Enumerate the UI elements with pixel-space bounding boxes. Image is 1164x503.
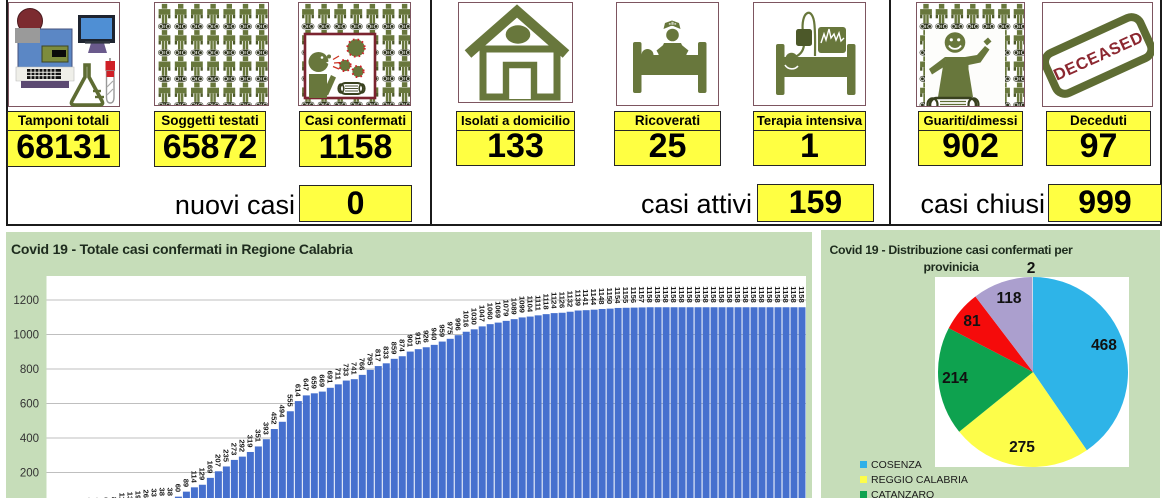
svg-text:81: 81 — [963, 313, 981, 330]
svg-text:1158: 1158 — [797, 286, 806, 302]
svg-text:940: 940 — [429, 328, 438, 341]
svg-text:795: 795 — [365, 353, 374, 366]
svg-text:38: 38 — [166, 487, 175, 495]
svg-text:1047: 1047 — [477, 305, 486, 322]
svg-text:1158: 1158 — [717, 286, 726, 302]
svg-text:1126: 1126 — [557, 292, 566, 308]
svg-text:659: 659 — [309, 376, 318, 389]
svg-text:1060: 1060 — [485, 303, 494, 320]
svg-text:1158: 1158 — [701, 286, 710, 302]
svg-text:1030: 1030 — [469, 308, 478, 325]
svg-text:129: 129 — [198, 468, 207, 481]
svg-text:1158: 1158 — [693, 286, 702, 302]
svg-text:800: 800 — [20, 364, 39, 376]
svg-text:1150: 1150 — [605, 288, 614, 304]
svg-text:1157: 1157 — [637, 286, 646, 302]
svg-text:2: 2 — [1027, 260, 1036, 277]
svg-text:901: 901 — [405, 334, 414, 347]
svg-text:691: 691 — [325, 371, 334, 384]
svg-text:669: 669 — [317, 374, 326, 387]
svg-text:494: 494 — [277, 405, 286, 418]
svg-text:114: 114 — [190, 471, 199, 484]
svg-text:600: 600 — [20, 399, 39, 411]
svg-text:1089: 1089 — [509, 298, 518, 315]
svg-text:733: 733 — [341, 363, 350, 376]
svg-text:859: 859 — [389, 342, 398, 355]
svg-text:1158: 1158 — [669, 286, 678, 302]
svg-text:1079: 1079 — [501, 299, 510, 316]
svg-text:214: 214 — [942, 370, 968, 387]
svg-text:1158: 1158 — [789, 286, 798, 302]
svg-text:1144: 1144 — [589, 289, 598, 306]
svg-text:1158: 1158 — [645, 286, 654, 302]
svg-text:1124: 1124 — [549, 292, 558, 309]
svg-text:915: 915 — [413, 332, 422, 345]
svg-text:1158: 1158 — [749, 286, 758, 302]
svg-text:1000: 1000 — [13, 330, 39, 342]
svg-text:468: 468 — [1091, 337, 1117, 354]
svg-text:1099: 1099 — [517, 296, 526, 313]
svg-text:1200: 1200 — [13, 295, 39, 307]
svg-text:1016: 1016 — [461, 310, 470, 327]
svg-text:26: 26 — [142, 490, 151, 498]
svg-text:1158: 1158 — [773, 286, 782, 302]
svg-text:1158: 1158 — [757, 286, 766, 302]
svg-text:1132: 1132 — [565, 291, 574, 307]
svg-text:1104: 1104 — [525, 296, 534, 313]
svg-text:766: 766 — [357, 358, 366, 371]
svg-text:292: 292 — [237, 439, 246, 452]
svg-text:207: 207 — [213, 454, 222, 467]
svg-text:874: 874 — [397, 339, 406, 352]
svg-text:1111: 1111 — [533, 295, 542, 311]
svg-text:555: 555 — [285, 394, 294, 407]
svg-text:1158: 1158 — [733, 286, 742, 302]
svg-text:38: 38 — [158, 487, 167, 495]
svg-text:19: 19 — [134, 491, 143, 498]
svg-text:1155: 1155 — [621, 287, 630, 304]
svg-text:711: 711 — [333, 368, 342, 381]
svg-text:60: 60 — [174, 484, 183, 492]
svg-text:1158: 1158 — [709, 286, 718, 302]
svg-text:235: 235 — [221, 449, 230, 462]
svg-text:647: 647 — [301, 378, 310, 391]
svg-text:741: 741 — [349, 362, 358, 375]
svg-text:1158: 1158 — [653, 286, 662, 302]
svg-text:351: 351 — [253, 429, 262, 442]
svg-text:614: 614 — [293, 384, 302, 397]
svg-text:1148: 1148 — [597, 288, 606, 304]
svg-text:169: 169 — [205, 461, 214, 474]
svg-text:833: 833 — [381, 346, 390, 359]
svg-text:393: 393 — [261, 422, 270, 435]
svg-text:33: 33 — [150, 488, 159, 496]
svg-text:1158: 1158 — [661, 286, 670, 302]
svg-text:1158: 1158 — [685, 286, 694, 302]
svg-text:200: 200 — [20, 468, 39, 480]
svg-text:1141: 1141 — [581, 289, 590, 306]
svg-text:11: 11 — [118, 493, 127, 498]
svg-text:1069: 1069 — [493, 301, 502, 318]
svg-text:400: 400 — [20, 433, 39, 445]
svg-text:118: 118 — [996, 290, 1021, 307]
svg-text:1118: 1118 — [541, 294, 550, 310]
svg-text:926: 926 — [421, 330, 430, 343]
svg-text:959: 959 — [437, 324, 446, 337]
svg-text:1139: 1139 — [573, 290, 582, 306]
svg-text:1158: 1158 — [725, 286, 734, 302]
svg-text:273: 273 — [229, 443, 238, 456]
svg-text:1154: 1154 — [613, 287, 622, 304]
svg-text:817: 817 — [373, 349, 382, 362]
svg-text:1156: 1156 — [629, 287, 638, 303]
svg-text:996: 996 — [453, 318, 462, 331]
svg-text:1158: 1158 — [781, 286, 790, 302]
svg-text:975: 975 — [445, 322, 454, 335]
svg-text:89: 89 — [182, 479, 191, 487]
svg-text:1158: 1158 — [677, 286, 686, 302]
svg-text:452: 452 — [269, 412, 278, 425]
svg-text:1158: 1158 — [741, 286, 750, 302]
svg-text:1158: 1158 — [765, 286, 774, 302]
svg-text:13: 13 — [126, 492, 135, 498]
svg-text:275: 275 — [1009, 439, 1035, 456]
svg-text:319: 319 — [245, 435, 254, 448]
